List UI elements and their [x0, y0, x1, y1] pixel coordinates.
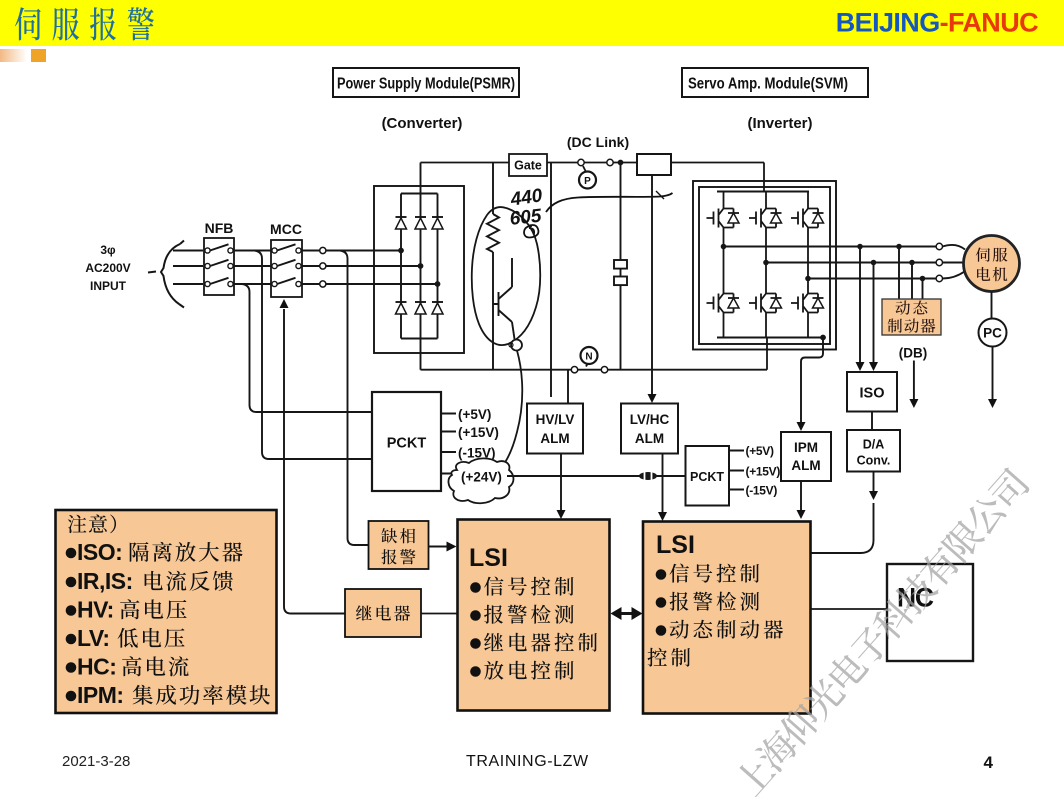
- svg-text:(DB): (DB): [899, 346, 928, 361]
- svg-text:N: N: [585, 352, 592, 363]
- svg-text:Gate: Gate: [514, 159, 542, 173]
- svg-text:605: 605: [509, 206, 543, 230]
- svg-text:Conv.: Conv.: [857, 454, 891, 468]
- svg-text:ALM: ALM: [540, 431, 569, 446]
- svg-text:D/A: D/A: [863, 438, 885, 452]
- svg-text:LSI: LSI: [469, 544, 508, 572]
- svg-text:ALM: ALM: [791, 458, 820, 473]
- svg-text:(+15V): (+15V): [458, 425, 499, 440]
- svg-text:PCKT: PCKT: [690, 470, 724, 484]
- svg-text:IR,IS:: IR,IS:: [77, 568, 133, 594]
- svg-text:ISO:: ISO:: [77, 539, 122, 565]
- svg-text:HV:: HV:: [77, 597, 114, 623]
- svg-text:(+24V): (+24V): [461, 470, 502, 485]
- svg-text:IPM: IPM: [794, 440, 818, 455]
- svg-text:ALM: ALM: [635, 431, 664, 446]
- svg-text:AC200V: AC200V: [85, 261, 130, 275]
- svg-text:P: P: [584, 176, 591, 187]
- svg-text:PCKT: PCKT: [387, 436, 427, 452]
- svg-text:(Inverter): (Inverter): [747, 115, 812, 132]
- svg-text:3φ: 3φ: [100, 243, 116, 257]
- svg-text:(+5V): (+5V): [458, 407, 491, 422]
- svg-text:INPUT: INPUT: [90, 279, 127, 293]
- svg-text:4: 4: [984, 753, 994, 772]
- svg-text:TRAINING-LZW: TRAINING-LZW: [466, 753, 589, 770]
- svg-text:(+5V): (+5V): [746, 444, 774, 458]
- svg-text:LV:: LV:: [77, 625, 110, 651]
- svg-text:HC:: HC:: [77, 654, 116, 680]
- svg-text:(DC Link): (DC Link): [567, 134, 629, 150]
- svg-text:BEIJING-FANUC: BEIJING-FANUC: [836, 8, 1038, 38]
- svg-text:2021-3-28: 2021-3-28: [62, 753, 130, 770]
- svg-text:(+15V): (+15V): [746, 465, 781, 479]
- svg-text:NFB: NFB: [205, 220, 234, 236]
- svg-text:HV/LV: HV/LV: [536, 412, 575, 427]
- svg-text:LSI: LSI: [656, 531, 695, 559]
- svg-text:PC: PC: [983, 326, 1002, 341]
- svg-text:(Converter): (Converter): [382, 115, 463, 132]
- svg-text:Power Supply Module(PSMR): Power Supply Module(PSMR): [337, 76, 515, 93]
- svg-text:IPM:: IPM:: [77, 682, 124, 708]
- svg-text:Servo Amp. Module(SVM): Servo Amp. Module(SVM): [688, 76, 848, 93]
- svg-text:MCC: MCC: [270, 221, 302, 237]
- svg-text:ISO: ISO: [860, 386, 885, 402]
- svg-text:(-15V): (-15V): [746, 484, 778, 498]
- svg-text:LV/HC: LV/HC: [630, 412, 670, 427]
